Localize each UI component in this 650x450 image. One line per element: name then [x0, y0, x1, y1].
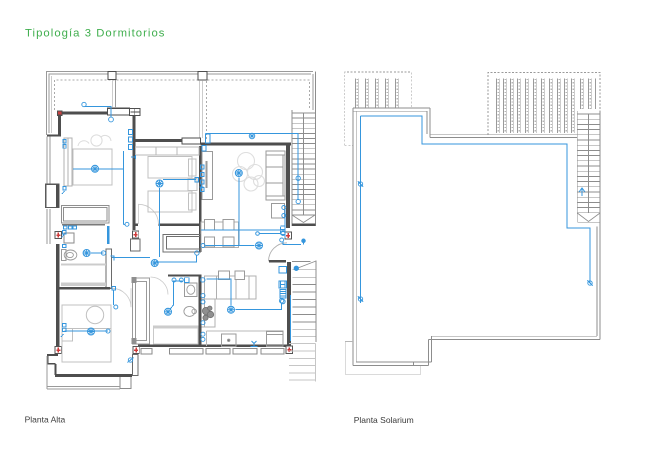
svg-text:Tipología 3 Dormitorios: Tipología 3 Dormitorios [25, 28, 166, 40]
svg-text:Planta Alta: Planta Alta [25, 415, 66, 425]
svg-text:Planta Solarium: Planta Solarium [354, 415, 414, 425]
